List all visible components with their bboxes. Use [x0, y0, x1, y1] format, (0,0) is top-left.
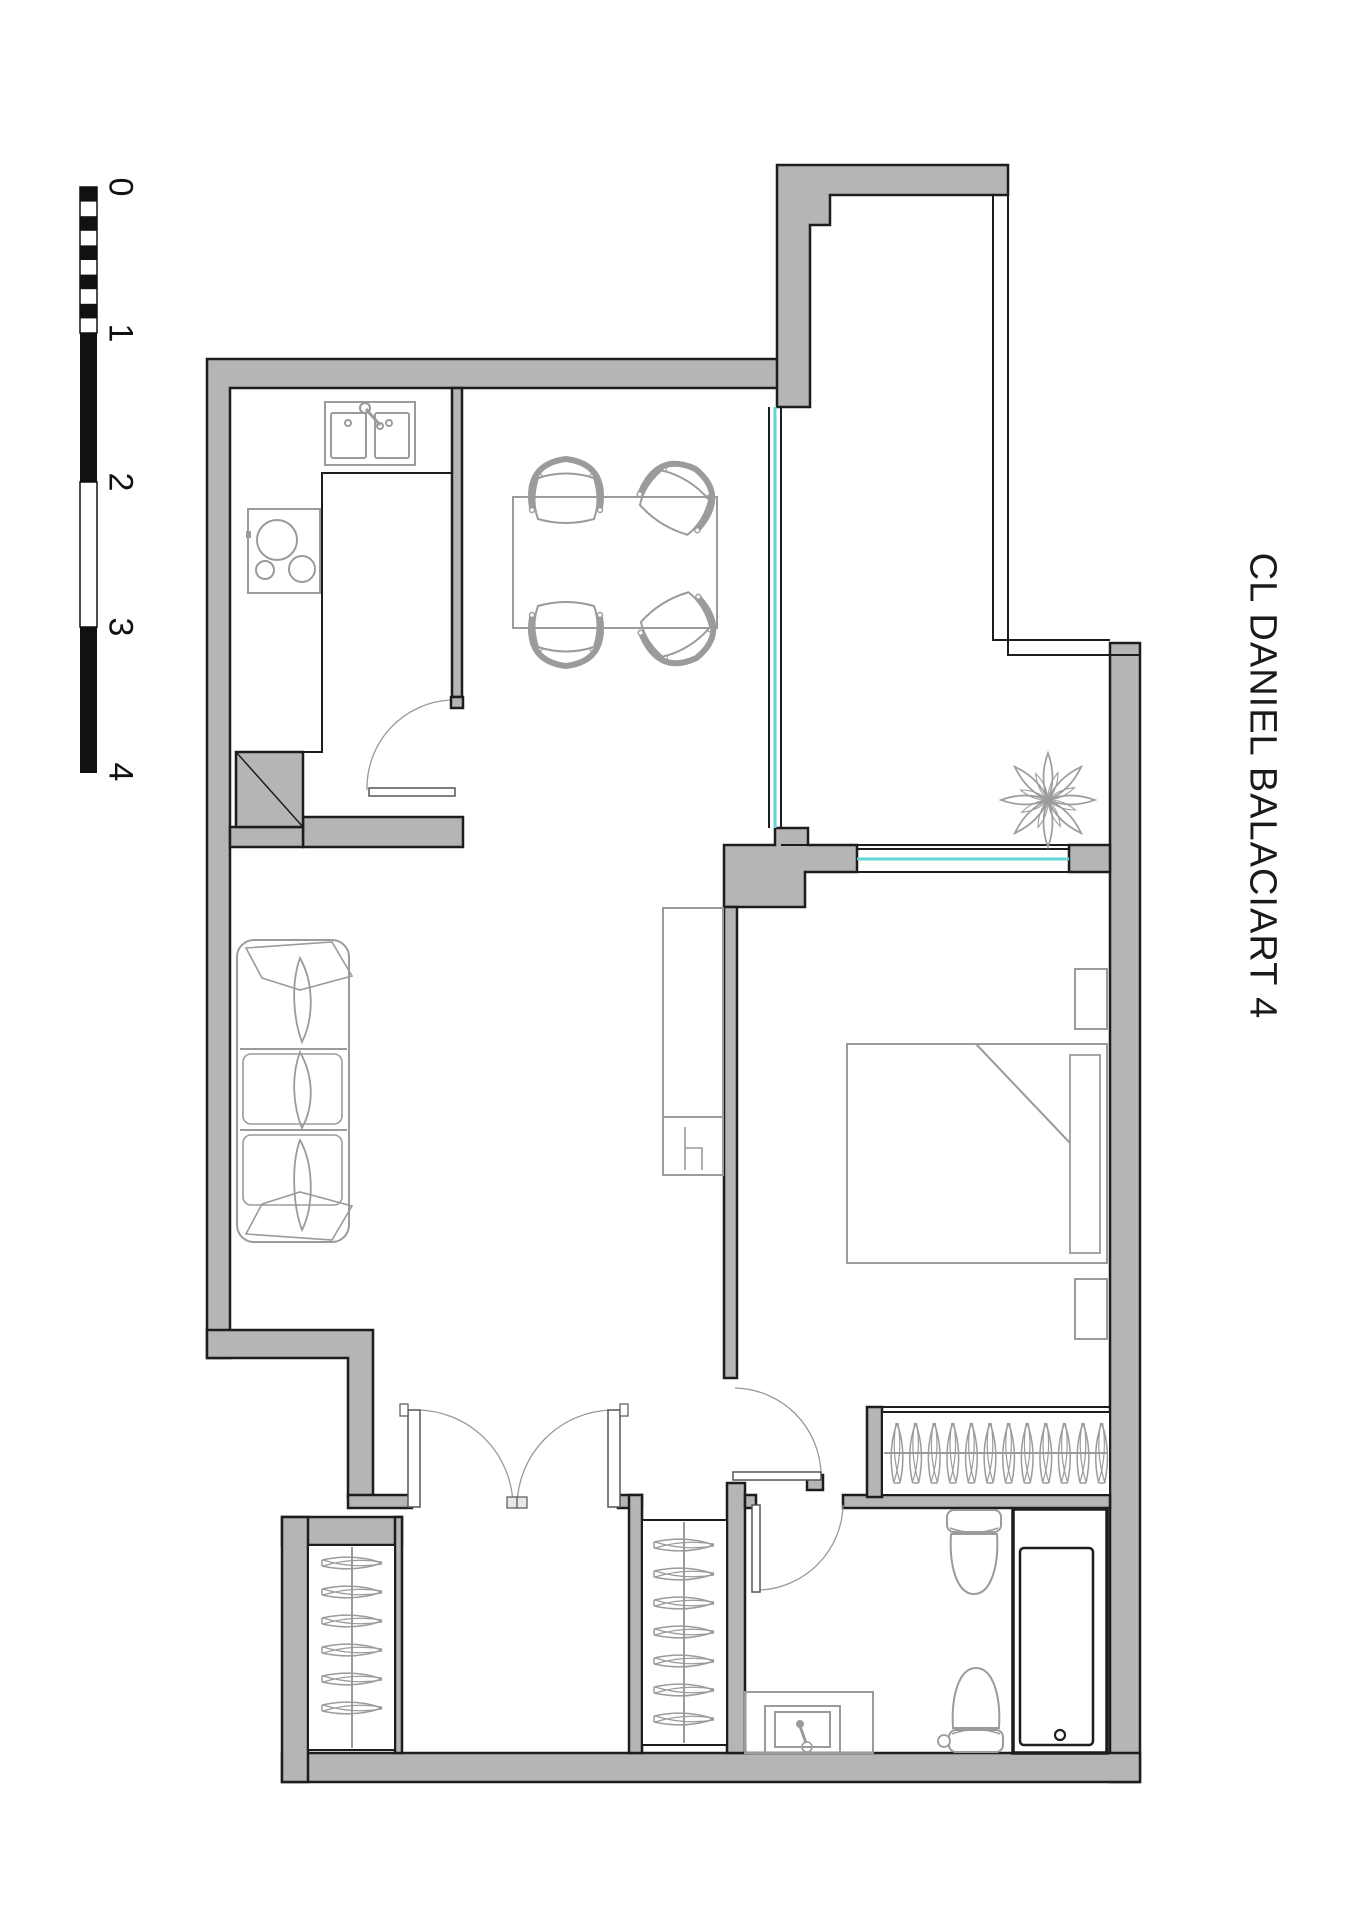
- floor-plan-sheet: 0 1 2 3 4 CL DANIEL BALACIART 4: [0, 0, 1357, 1920]
- scale-bar: [80, 187, 97, 773]
- wall-entry-closet-left: [282, 1517, 308, 1782]
- toilet-upper: [947, 1510, 1001, 1594]
- scale-segment: [80, 304, 97, 319]
- dining-chair: [530, 602, 603, 666]
- wall-kitchen-jamb: [451, 697, 463, 708]
- plant-icon: [1001, 753, 1095, 847]
- kitchen-sink: [325, 402, 415, 465]
- bathtub: [1013, 1509, 1107, 1753]
- scale-segment: [80, 245, 97, 260]
- bathroom-sink: [745, 1692, 873, 1753]
- scale-segment: [80, 216, 97, 231]
- scale-segment: [80, 187, 97, 202]
- dining-chair: [530, 459, 603, 523]
- kitchen-counter: [237, 473, 452, 752]
- window-living: [769, 407, 781, 828]
- bed: [847, 1044, 1107, 1263]
- wardrobe: [867, 1407, 1110, 1495]
- wall-hall-closet-left2: [629, 1495, 642, 1753]
- door-kitchen: [367, 700, 455, 796]
- tv-cabinet: [663, 908, 723, 1175]
- wall-kitchen-bottom2: [230, 827, 303, 847]
- wall-terrace-top: [777, 165, 1008, 407]
- wall-bottom: [282, 1753, 1140, 1782]
- dining-set: [513, 450, 727, 678]
- wall-corridor-step: [207, 1330, 373, 1497]
- floor-plan: [0, 0, 1357, 1920]
- entry-double-door: [400, 1404, 628, 1508]
- entry-closet: [308, 1545, 395, 1750]
- wall-bathroom-left: [727, 1483, 745, 1753]
- terrace-railing: [993, 195, 1140, 655]
- dining-table: [513, 497, 717, 628]
- wall-right: [1110, 643, 1140, 1782]
- nightstand: [1075, 1279, 1107, 1339]
- kitchen: [237, 473, 452, 752]
- door-bedroom: [733, 1388, 821, 1480]
- wall-bedroom-pier: [724, 828, 857, 907]
- nightstand: [1075, 969, 1107, 1029]
- toilet-lower: [938, 1668, 1003, 1752]
- door-bathroom: [752, 1505, 843, 1592]
- dining-chair: [632, 584, 728, 677]
- wall-window-block: [1069, 845, 1110, 872]
- sofa: [237, 940, 352, 1242]
- wall-wardrobe-left: [867, 1407, 882, 1497]
- scale-segment: [80, 275, 97, 290]
- cooktop: [246, 509, 320, 593]
- shaft: [236, 752, 303, 827]
- window-bedroom: [857, 849, 1069, 872]
- hall-closet: [642, 1520, 727, 1745]
- wall-entry-closet-right: [395, 1517, 402, 1753]
- wall-entry-left: [348, 1495, 412, 1508]
- wall-bedroom-partition: [724, 907, 737, 1378]
- wall-kitchen-bottom: [303, 817, 463, 847]
- wall-kitchen-divider: [452, 388, 462, 697]
